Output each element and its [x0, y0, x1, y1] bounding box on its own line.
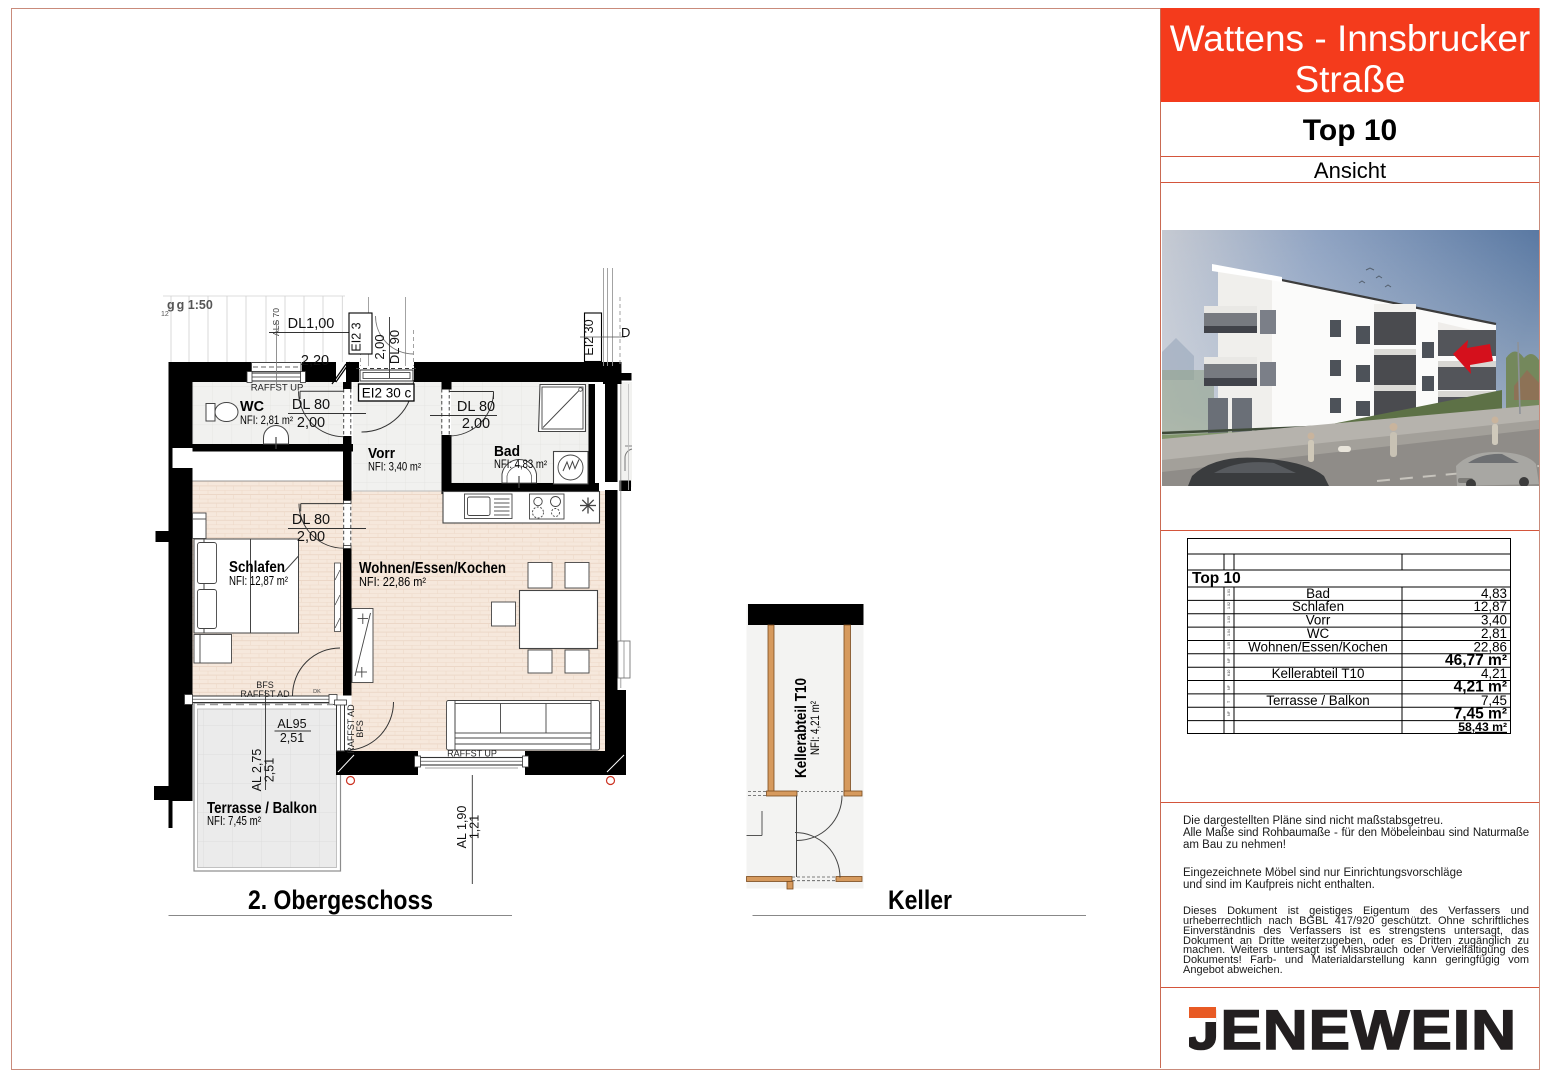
- svg-text:BFS: BFS: [355, 720, 365, 738]
- svg-text:NF: NF: [1227, 657, 1231, 663]
- svg-text:Vorr: Vorr: [368, 445, 395, 462]
- svg-text:NFI: 3,40 m²: NFI: 3,40 m²: [368, 462, 421, 474]
- svg-text:2,20: 2,20: [301, 353, 329, 369]
- svg-text:1,21: 1,21: [468, 815, 482, 839]
- svg-text:EI2 30 c: EI2 30 c: [362, 386, 412, 401]
- svg-text:T: T: [1227, 700, 1231, 703]
- svg-text:D: D: [621, 325, 630, 340]
- svg-text:gg 1:50: gg 1:50: [167, 298, 213, 312]
- svg-text:12: 12: [161, 311, 169, 318]
- svg-text:K10: K10: [1227, 670, 1231, 676]
- svg-text:58,43 m²: 58,43 m²: [1458, 720, 1507, 734]
- svg-text:NFI: 12,87 m²: NFI: 12,87 m²: [229, 574, 288, 588]
- svg-text:WC: WC: [240, 399, 265, 415]
- svg-text:NFI: 7,45 m²: NFI: 7,45 m²: [207, 814, 261, 828]
- svg-text:1.02: 1.02: [1227, 602, 1231, 609]
- svg-text:NF: NF: [1227, 710, 1231, 716]
- svg-text:2,00: 2,00: [372, 334, 387, 359]
- svg-text:2,00: 2,00: [297, 415, 325, 431]
- svg-text:Kellerabteil T10: Kellerabteil T10: [1272, 666, 1365, 681]
- svg-text:Top 10: Top 10: [1192, 570, 1241, 587]
- svg-text:NFI: 2,81 m²: NFI: 2,81 m²: [240, 415, 293, 427]
- svg-text:NF: NF: [1227, 684, 1231, 690]
- svg-text:2,00: 2,00: [297, 529, 325, 545]
- svg-text:Keller: Keller: [888, 885, 952, 915]
- svg-text:EI2 30: EI2 30: [582, 319, 596, 355]
- svg-text:1.01: 1.01: [1227, 589, 1231, 596]
- svg-text:1.04: 1.04: [1227, 629, 1231, 636]
- svg-text:DL 80: DL 80: [457, 399, 495, 415]
- svg-text:AL95: AL95: [277, 717, 306, 731]
- svg-text:NFI: 22,86 m²: NFI: 22,86 m²: [359, 575, 426, 589]
- svg-text:RAFFST UP: RAFFST UP: [447, 749, 497, 759]
- svg-text:1.03: 1.03: [1227, 616, 1231, 623]
- svg-text:ALS 70: ALS 70: [271, 308, 281, 336]
- svg-text:DK: DK: [313, 689, 321, 695]
- svg-text:Wohnen/Essen/Kochen: Wohnen/Essen/Kochen: [1248, 639, 1388, 654]
- svg-text:1.05: 1.05: [1227, 642, 1231, 649]
- svg-text:NFI: 4,21 m²: NFI: 4,21 m²: [808, 701, 822, 755]
- svg-text:DL 80: DL 80: [292, 512, 330, 528]
- svg-text:DL 90: DL 90: [387, 330, 402, 364]
- svg-text:2,00: 2,00: [462, 416, 490, 432]
- svg-text:Terrasse / Balkon: Terrasse / Balkon: [1266, 693, 1369, 708]
- svg-text:2. Obergeschoss: 2. Obergeschoss: [248, 885, 433, 915]
- svg-text:RAFFST UP: RAFFST UP: [251, 383, 304, 394]
- svg-text:2,51: 2,51: [280, 731, 304, 745]
- svg-text:EI2 3: EI2 3: [350, 322, 364, 351]
- svg-text:DL1,00: DL1,00: [288, 316, 335, 332]
- svg-text:NFI: 4,83 m²: NFI: 4,83 m²: [494, 459, 547, 471]
- svg-text:JENEWEIN: JENEWEIN: [1189, 1004, 1513, 1054]
- svg-text:2,51: 2,51: [263, 758, 277, 782]
- svg-text:DL 80: DL 80: [292, 397, 330, 413]
- svg-text:Bad: Bad: [494, 443, 520, 460]
